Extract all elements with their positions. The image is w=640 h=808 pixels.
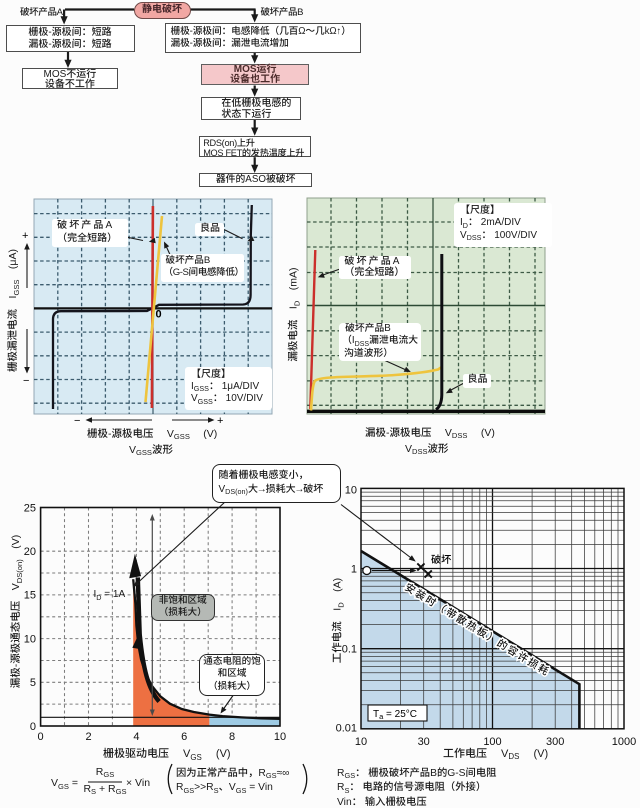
svg-text:30: 30 <box>418 736 430 748</box>
svg-text:15: 15 <box>24 590 36 602</box>
svg-text:25: 25 <box>24 502 36 514</box>
svg-text:+: + <box>217 415 223 427</box>
svg-text:8: 8 <box>229 731 235 743</box>
svg-text:20: 20 <box>24 546 36 558</box>
svg-text:1000: 1000 <box>612 736 636 748</box>
svg-text:10: 10 <box>345 484 357 496</box>
svg-text:0.01: 0.01 <box>336 722 357 734</box>
svg-text:6: 6 <box>181 731 187 743</box>
svg-text:0: 0 <box>38 731 44 743</box>
svg-text:10: 10 <box>24 633 36 645</box>
svg-text:10: 10 <box>355 736 367 748</box>
svg-text:0: 0 <box>156 309 162 321</box>
svg-text:300: 300 <box>546 736 564 748</box>
svg-text:1: 1 <box>351 563 357 575</box>
svg-text:−: − <box>74 415 80 427</box>
svg-text:2: 2 <box>85 731 91 743</box>
svg-text:0: 0 <box>30 721 36 733</box>
svg-text:5: 5 <box>30 677 36 689</box>
svg-text:4: 4 <box>133 731 139 743</box>
svg-text:10: 10 <box>274 731 286 743</box>
svg-text:−: − <box>23 375 29 387</box>
svg-text:破坏: 破坏 <box>431 554 451 566</box>
svg-text:+: + <box>22 230 28 242</box>
